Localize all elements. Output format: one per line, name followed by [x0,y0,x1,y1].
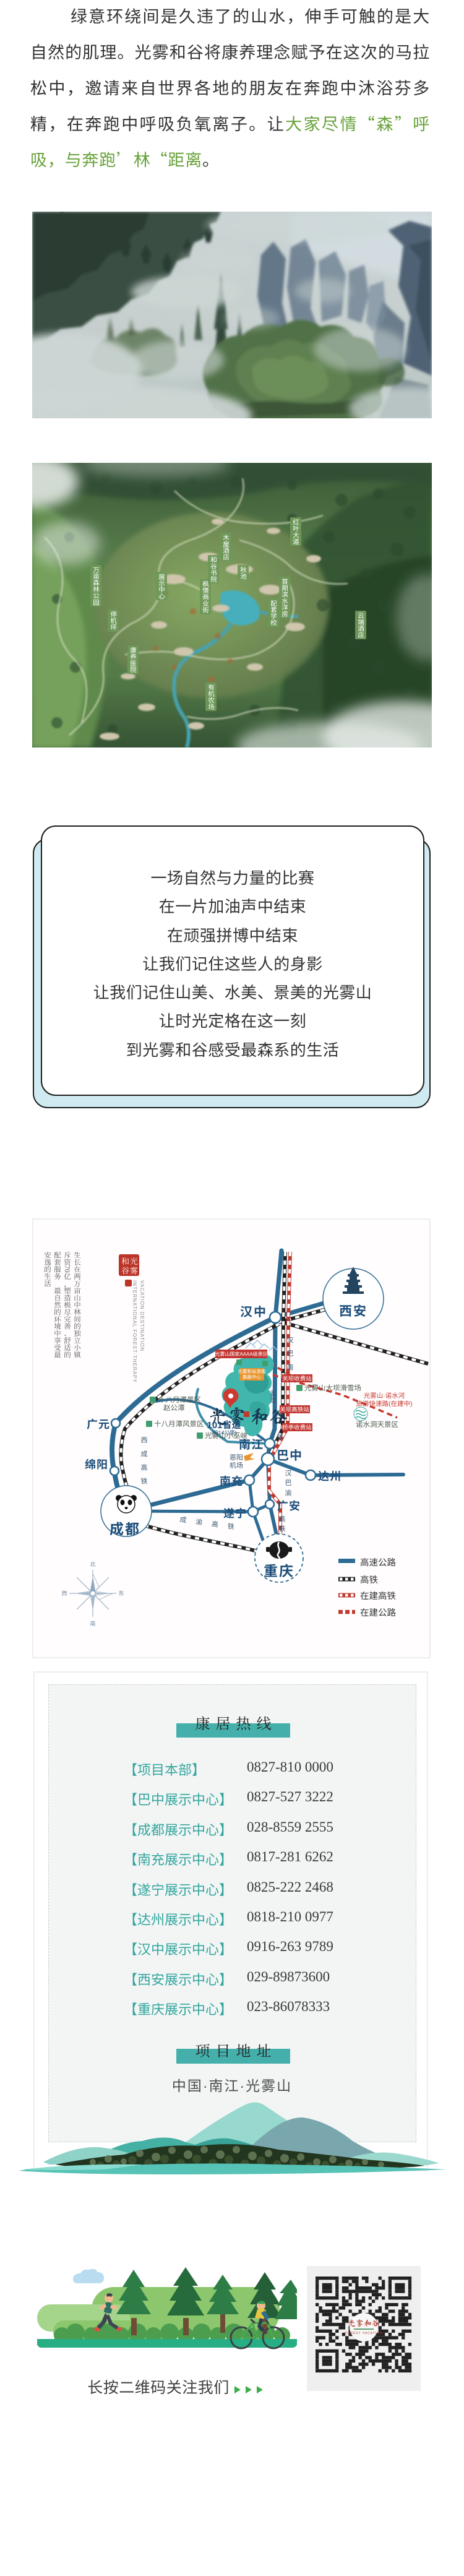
svg-text:诺水洞天景区: 诺水洞天景区 [356,1419,398,1429]
svg-text:重庆: 重庆 [264,1559,294,1580]
svg-text:南: 南 [90,1619,95,1627]
svg-text:雾: 雾 [130,1264,138,1276]
svg-text:谷: 谷 [121,1264,129,1276]
svg-text:集散中心: 集散中心 [243,1374,261,1381]
svg-text:在建高铁: 在建高铁 [360,1589,396,1602]
svg-text:广安: 广安 [277,1497,301,1514]
svg-text:赵公潭: 赵公潭 [163,1403,185,1413]
svg-text:(约14公里): (约14公里) [212,1429,237,1436]
svg-text:机场: 机场 [230,1460,243,1470]
svg-text:遂宁: 遂宁 [223,1505,247,1521]
svg-text:达州: 达州 [318,1468,342,1484]
svg-text:北: 北 [90,1560,95,1568]
svg-text:关坝高铁站: 关坝高铁站 [280,1405,309,1413]
svg-text:光雾山大坝滑雪场: 光雾山大坝滑雪场 [304,1383,361,1393]
svg-text:高速: 高速 [269,1389,278,1403]
svg-text:FOREST VACATION: FOREST VACATION [345,2331,382,2335]
svg-text:关坝收费站: 关坝收费站 [282,1374,312,1382]
svg-text:南充: 南充 [220,1473,243,1489]
svg-text:西成高铁: 西成高铁 [139,1436,149,1491]
svg-text:旅游快速路(在建中): 旅游快速路(在建中) [356,1399,413,1408]
svg-text:十八月潭风景区: 十八月潭风景区 [154,1419,204,1429]
svg-text:INTERNATIONAL FOREST-THERAPY: INTERNATIONAL FOREST-THERAPY [131,1280,138,1383]
svg-text:汉巴渝: 汉巴渝 [283,1469,293,1499]
svg-text:高速公路: 高速公路 [360,1556,396,1569]
svg-text:成都: 成都 [110,1517,140,1538]
svg-text:在建公路: 在建公路 [360,1606,396,1619]
svg-text:光雾和谷: 光雾和谷 [348,2319,380,2327]
svg-text:高铁: 高铁 [275,1409,285,1457]
svg-text:东: 东 [118,1589,124,1597]
svg-text:汉中: 汉中 [240,1302,267,1320]
svg-text:光雾山国家AAAA级景区: 光雾山国家AAAA级景区 [215,1351,267,1358]
svg-text:西安: 西安 [339,1301,367,1320]
svg-text:广元: 广元 [87,1416,110,1432]
svg-text:VACATION DESTINATION: VACATION DESTINATION [139,1280,145,1351]
svg-text:西: 西 [61,1589,67,1597]
svg-text:高铁: 高铁 [360,1573,378,1586]
svg-text:桥亭收费站: 桥亭收费站 [282,1423,312,1431]
svg-text:绵阳: 绵阳 [85,1456,108,1472]
svg-text:汉巴南: 汉巴南 [285,1336,295,1377]
svg-text:高铁: 高铁 [277,1515,287,1535]
